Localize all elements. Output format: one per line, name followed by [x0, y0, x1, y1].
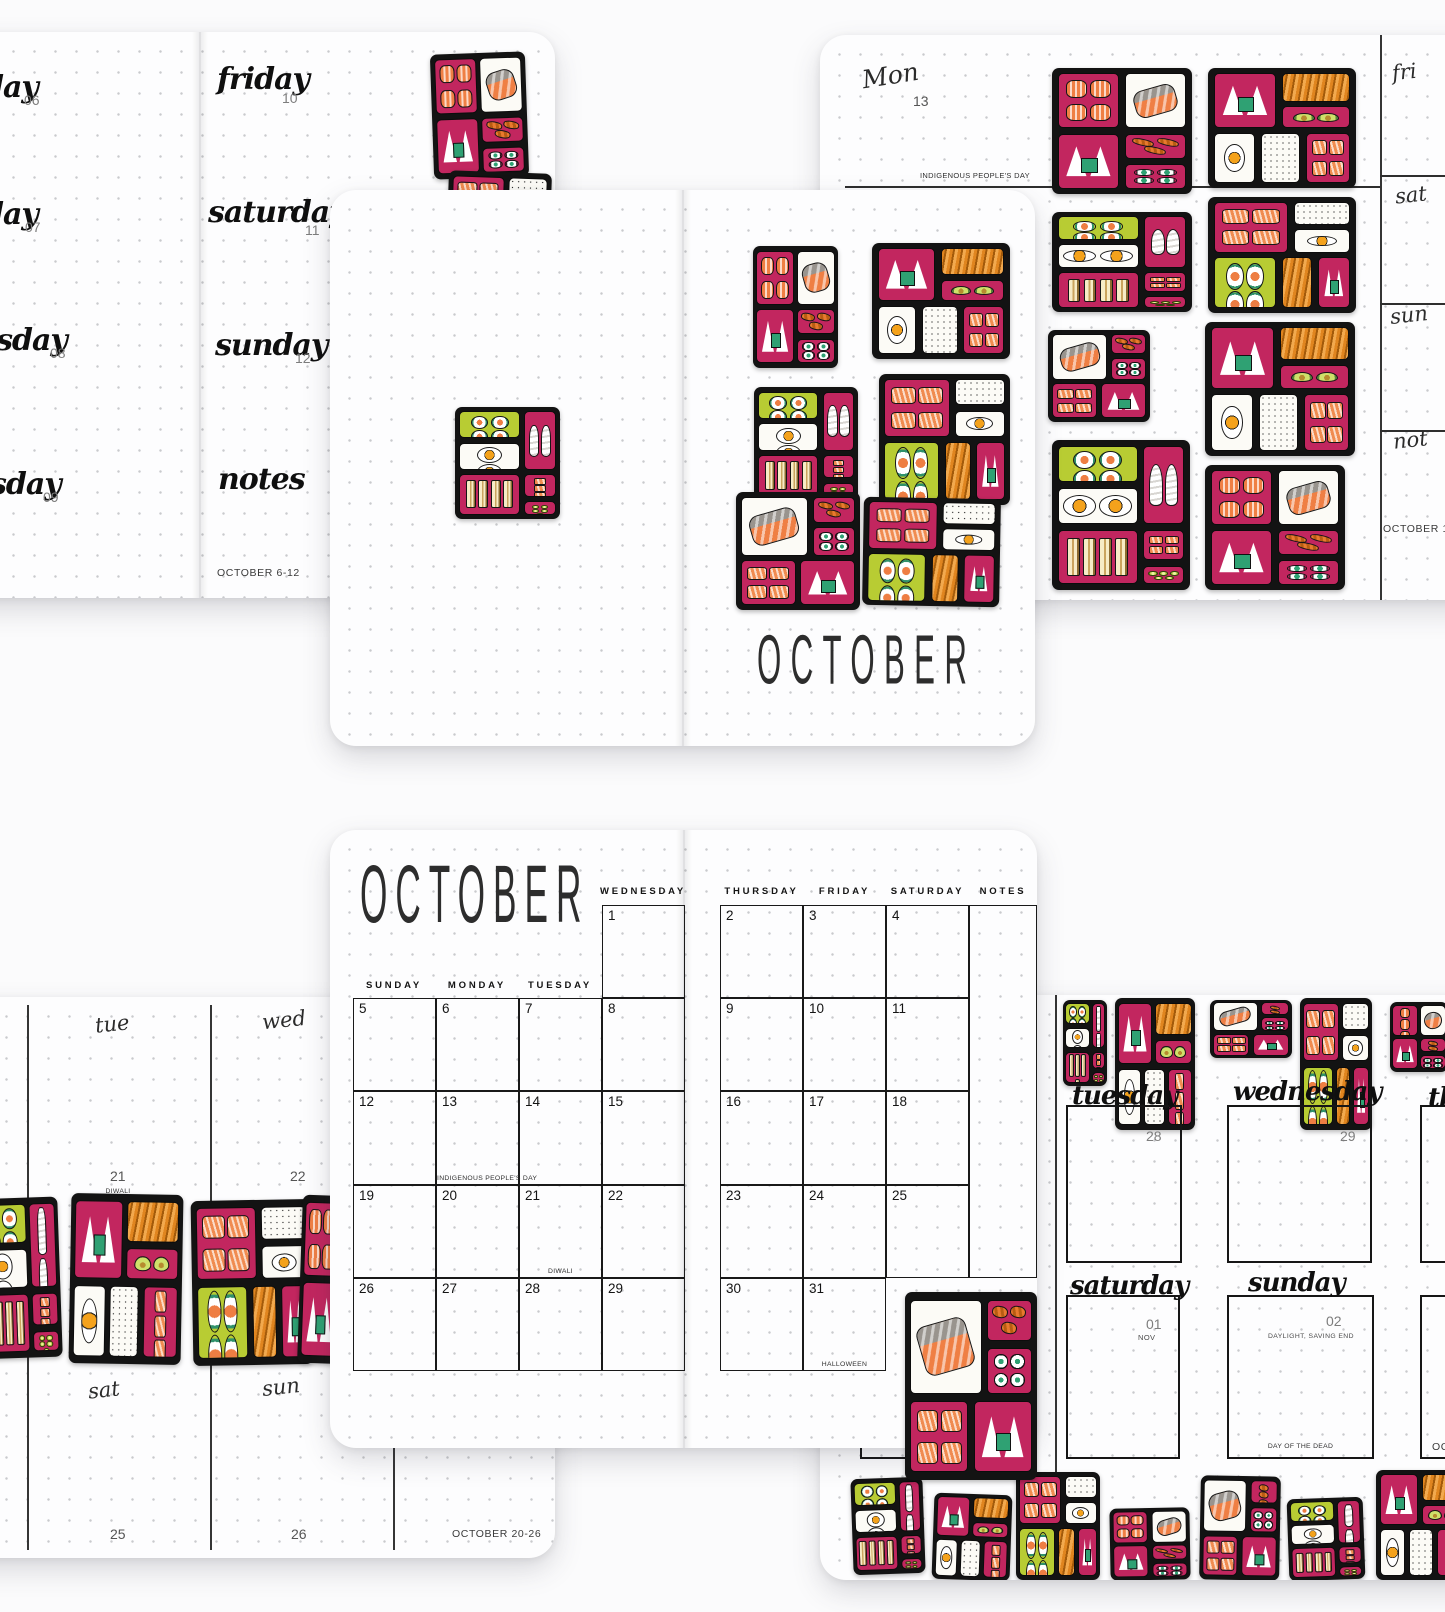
food-piece-icon [503, 120, 520, 130]
food-piece-icon [1026, 1532, 1036, 1559]
food-piece-icon [1307, 236, 1337, 246]
nori-icon [900, 271, 915, 285]
food-piece-icon [1115, 538, 1127, 576]
nori-icon [771, 333, 781, 347]
food-piece-icon [272, 1253, 297, 1272]
food-piece-icon [1400, 1019, 1410, 1030]
bento-box-sticker [753, 246, 838, 368]
food-piece-icon [1400, 1008, 1410, 1019]
bento-compartment-avocado-icon [126, 1248, 178, 1279]
calendar-cell: 8 [602, 998, 685, 1091]
calendar-cell: 29 [602, 1278, 685, 1371]
food-piece-icon [985, 313, 999, 327]
weekday-header: NOTES [943, 886, 1037, 897]
bento-compartment-salmon-icon [1143, 530, 1184, 560]
food-piece-icon [1096, 1054, 1101, 1060]
calendar-cell: 14 [519, 1091, 602, 1184]
bento-compartment-rolls-icon [1065, 1003, 1091, 1024]
calendar-date: 22 [608, 1188, 623, 1203]
bento-compartment-rolls_sm-icon [813, 527, 855, 555]
food-piece-icon [1160, 1046, 1172, 1059]
bento-compartment-salmon-icon [1306, 133, 1350, 183]
bento-compartment-onigiri-icon [1058, 134, 1120, 189]
bento-compartment-rolls-icon [1214, 257, 1276, 308]
food-piece-icon [1433, 1063, 1442, 1068]
calendar-date: 19 [359, 1188, 374, 1203]
calendar-cell: 16 [720, 1091, 803, 1184]
food-piece-icon [917, 1410, 938, 1432]
food-piece-icon [1224, 144, 1245, 173]
calendar-cell: 25 [886, 1185, 969, 1278]
food-piece-icon [1348, 1040, 1363, 1056]
food-piece-icon [776, 257, 790, 275]
bento-compartment-eggs2-icon [1291, 1524, 1336, 1545]
food-piece-icon [941, 1410, 962, 1432]
food-piece-icon [1154, 576, 1163, 580]
bento-compartment-rolls-icon [884, 442, 939, 500]
nori-icon [996, 1433, 1011, 1452]
calendar-date: 16 [726, 1094, 741, 1109]
bento-compartment-salmon-icon [1437, 1529, 1445, 1575]
calendar-cell: 12 [353, 1091, 436, 1184]
bento-compartment-eggs2-icon [1058, 244, 1139, 268]
food-piece-icon [439, 65, 455, 84]
food-piece-icon [491, 430, 509, 438]
bento-compartment-onigiri-icon [1392, 1038, 1418, 1069]
food-piece-icon [40, 1307, 50, 1317]
food-piece-icon [765, 461, 775, 490]
food-piece-icon [861, 1485, 874, 1498]
food-piece-icon [790, 396, 808, 410]
bento-compartment-fried-icon [481, 116, 524, 142]
calendar-cell: 7 [519, 998, 602, 1091]
food-piece-icon [41, 1318, 51, 1325]
food-piece-icon [1265, 1021, 1275, 1026]
bento-compartment-onigiri-icon [1211, 327, 1274, 389]
food-piece-icon [876, 528, 902, 542]
food-piece-icon [1304, 1540, 1323, 1545]
bento-compartment-fried-icon [797, 309, 834, 333]
bento-compartment-eggs2-icon [1065, 1028, 1091, 1049]
food-piece-icon [1306, 1010, 1320, 1029]
food-piece-icon [906, 1565, 912, 1569]
bento-box-sticker [1109, 1507, 1190, 1580]
food-piece-icon [1149, 546, 1163, 554]
nori-icon [1118, 399, 1130, 409]
bento-compartment-salmon-icon [143, 1286, 178, 1358]
food-piece-icon [991, 1544, 1000, 1556]
day-heading-tue: tue [94, 1010, 131, 1037]
bento-box-sticker [879, 374, 1010, 505]
bento-compartment-nigiri-icon [1392, 1005, 1418, 1036]
food-piece-icon [1329, 140, 1344, 155]
food-piece-icon [802, 461, 812, 490]
nori-icon [1267, 1043, 1277, 1050]
food-piece-icon [1253, 1511, 1262, 1520]
calendar-cell: 24 [803, 1185, 886, 1278]
bento-compartment-noodles-icon [1058, 1528, 1075, 1576]
nori-icon [821, 580, 836, 592]
food-piece-icon [1099, 451, 1122, 469]
food-piece-icon [47, 1341, 53, 1347]
day-number: 13 [913, 93, 929, 109]
calendar-date: 17 [809, 1094, 824, 1109]
nori-icon [1235, 355, 1252, 371]
calendar-cell: 5 [353, 998, 436, 1091]
bento-box-sticker [1208, 68, 1356, 188]
bento-compartment-salmon-icon [1019, 1476, 1061, 1524]
food-piece-icon [1329, 161, 1344, 176]
calendar-date: 12 [359, 1094, 374, 1109]
day-heading-sat-partial: sat [1394, 181, 1428, 208]
food-piece-icon [1096, 1033, 1101, 1048]
bento-compartment-noodles-icon [931, 554, 959, 602]
food-piece-icon [1072, 1030, 1083, 1044]
day-number: 28 [1146, 1128, 1162, 1144]
food-piece-icon [839, 405, 850, 438]
day-number: 08 [50, 345, 66, 361]
food-piece-icon [907, 1544, 915, 1550]
food-piece-icon [790, 461, 800, 490]
food-piece-icon [1348, 1576, 1354, 1577]
food-piece-icon [1252, 209, 1279, 224]
bento-compartment-fried-icon [1111, 334, 1146, 354]
food-piece-icon [917, 1442, 938, 1464]
food-piece-icon [1129, 369, 1141, 376]
food-piece-icon [747, 585, 767, 598]
bento-compartment-rolls-icon [853, 1482, 896, 1506]
food-piece-icon [1265, 1026, 1275, 1031]
bento-compartment-ricesp-icon [960, 1540, 982, 1577]
calendar-date: 29 [608, 1281, 623, 1296]
bento-compartment-onigiri-icon [1318, 257, 1351, 308]
day-heading-thursday-partial: th [1428, 1083, 1445, 1113]
calendar-cell: 18 [886, 1091, 969, 1184]
food-piece-icon [1219, 501, 1240, 518]
food-piece-icon [886, 1540, 894, 1565]
bento-compartment-onigiri-icon [974, 1401, 1032, 1472]
food-piece-icon [223, 1291, 238, 1333]
food-piece-icon [994, 1373, 1009, 1388]
food-piece-icon [2, 1208, 17, 1230]
planner-mockup-collage: { "palette":{"magenta":"#c2265f","orange… [0, 0, 1445, 1612]
bento-compartment-onigiri-icon [1214, 73, 1276, 128]
calendar-holiday-note: HALLOWEEN [804, 1361, 885, 1368]
food-piece-icon [906, 1514, 915, 1531]
calendar-cell: 22 [602, 1185, 685, 1278]
calendar-cell: 23 [720, 1185, 803, 1278]
calendar-date: 9 [726, 1001, 734, 1016]
bento-compartment-fried-icon [813, 497, 855, 523]
bento-compartment-whitefish-icon [1143, 446, 1184, 524]
food-piece-icon [1010, 1373, 1025, 1388]
food-piece-icon [1156, 137, 1179, 148]
bento-compartment-cuke-icon [33, 1331, 59, 1351]
food-piece-icon [1170, 1547, 1184, 1554]
bento-compartment-onigiri-icon [1113, 1545, 1149, 1577]
food-piece-icon [1057, 389, 1074, 400]
food-piece-icon [1038, 1532, 1048, 1559]
bento-compartment-onigiri-icon [1118, 1003, 1152, 1064]
bento-compartment-rolls_sm-icon [797, 339, 834, 363]
bento-compartment-noodles-icon [127, 1201, 179, 1243]
bento-compartment-whitefish-icon [1092, 1003, 1105, 1048]
food-piece-icon [1345, 1572, 1351, 1575]
food-piece-icon [918, 387, 942, 404]
bento-compartment-onigiri-icon [800, 560, 855, 605]
bento-compartment-egg-icon [878, 306, 917, 355]
food-piece-icon [951, 286, 971, 295]
food-piece-icon [46, 1335, 52, 1341]
food-piece-icon [1078, 1018, 1086, 1024]
food-piece-icon [0, 1231, 1, 1244]
food-piece-icon [1310, 426, 1326, 442]
food-piece-icon [1287, 565, 1307, 572]
nori-icon [1131, 1030, 1141, 1046]
food-piece-icon [897, 585, 914, 601]
food-piece-icon [1217, 1037, 1231, 1044]
food-piece-icon [308, 1244, 322, 1269]
day-heading-wed: wed [261, 1006, 307, 1034]
bento-compartment-whitefish-icon [898, 1481, 921, 1532]
food-piece-icon [1293, 113, 1314, 122]
food-piece-icon [1024, 1482, 1040, 1497]
food-piece-icon [1073, 451, 1096, 469]
bento-compartment-egg-icon [1380, 1529, 1406, 1575]
food-piece-icon [912, 1565, 918, 1569]
food-piece-icon [154, 1291, 166, 1313]
food-piece-icon [913, 447, 929, 479]
food-piece-icon [39, 1335, 45, 1341]
calendar-date: 4 [892, 908, 900, 923]
bento-compartment-salmon-icon [195, 1207, 256, 1281]
food-piece-icon [1165, 576, 1174, 580]
bento-compartment-fried-icon [1261, 1002, 1289, 1015]
bento-compartment-salmon-icon [1144, 272, 1186, 292]
food-piece-icon [1221, 1558, 1235, 1571]
bento-compartment-eggs2-icon [1058, 488, 1138, 524]
day-heading-sat: sat [87, 1376, 121, 1403]
bento-compartment-fried-icon [1250, 1480, 1278, 1503]
bento-compartment-onigiri-icon [436, 118, 480, 174]
bento-box-sticker [69, 1193, 184, 1365]
monthly-title: OCTOBER [360, 850, 589, 943]
calendar-date: 11 [892, 1001, 906, 1016]
food-piece-icon [895, 447, 911, 479]
calendar-date: 8 [608, 1001, 616, 1016]
food-piece-icon [1149, 536, 1163, 544]
food-piece-icon [471, 430, 489, 438]
food-piece-icon [1165, 464, 1179, 507]
food-piece-icon [489, 160, 504, 169]
bento-box-sticker [1376, 1470, 1445, 1580]
food-piece-icon [1400, 1031, 1410, 1036]
bento-box-sticker [1208, 197, 1356, 313]
food-piece-icon [1073, 470, 1096, 482]
bento-compartment-avocado-icon [941, 280, 1004, 301]
bento-box-sticker [872, 243, 1010, 359]
food-piece-icon [1344, 1504, 1353, 1528]
bento-compartment-avocado-icon [972, 1522, 1008, 1539]
nori-icon [1081, 158, 1097, 173]
food-piece-icon [1100, 250, 1133, 262]
bento-compartment-cuke-icon [524, 501, 556, 514]
bento-compartment-ricesp-icon [109, 1286, 139, 1358]
food-piece-icon [1346, 1561, 1355, 1564]
food-piece-icon [1157, 1571, 1169, 1576]
food-piece-icon [534, 485, 545, 492]
calendar-cell: 2 [720, 905, 803, 998]
food-piece-icon [776, 445, 801, 451]
food-piece-icon [1129, 362, 1141, 369]
bento-compartment-fried-icon [987, 1300, 1032, 1341]
food-piece-icon [1386, 1538, 1399, 1566]
food-piece-icon [1151, 229, 1165, 256]
bento-compartment-rolls_sm-icon [1420, 1055, 1445, 1069]
food-piece-icon [905, 509, 931, 523]
nori-icon [1330, 280, 1339, 294]
food-piece-icon [1312, 161, 1327, 176]
bento-compartment-salmon-icon [1213, 1034, 1249, 1056]
calendar-date: 1 [608, 908, 616, 923]
food-piece-icon [866, 1512, 884, 1527]
food-piece-icon [876, 1498, 889, 1506]
nori-icon [1085, 1549, 1091, 1562]
calendar-date: 31 [809, 1281, 824, 1296]
food-piece-icon [1096, 1067, 1101, 1069]
food-piece-icon [227, 1248, 250, 1271]
calendar-cell: 26 [353, 1278, 436, 1371]
food-piece-icon [1090, 104, 1111, 121]
food-piece-icon [227, 1215, 250, 1238]
food-piece-icon [898, 559, 915, 584]
food-piece-icon [1327, 426, 1343, 442]
food-piece-icon [1322, 1010, 1336, 1029]
food-piece-icon [1243, 477, 1264, 494]
food-piece-icon [495, 129, 512, 139]
food-piece-icon [790, 410, 808, 419]
bento-compartment-sandwich-icon [1065, 1052, 1091, 1083]
calendar-cell: 27 [436, 1278, 519, 1371]
food-piece-icon [1100, 221, 1123, 231]
day-number: 22 [290, 1168, 306, 1184]
day-number: 12 [295, 350, 311, 366]
day-heading-saturday: saturday [208, 195, 346, 230]
food-piece-icon [1310, 402, 1326, 418]
bento-compartment-rolls_sm-icon [1152, 1562, 1187, 1577]
bento-compartment-fried-icon [1278, 530, 1340, 555]
calendar-date: 3 [809, 908, 817, 923]
day-heading-tuesday: tuesday [1072, 1081, 1177, 1111]
food-piece-icon [817, 342, 830, 350]
calendar-date: 23 [726, 1188, 741, 1203]
bento-compartment-salmon-icon [910, 1401, 968, 1472]
bento-compartment-avocado-icon [1422, 1505, 1445, 1525]
food-piece-icon [1067, 538, 1079, 576]
food-piece-icon [905, 1484, 914, 1512]
bento-compartment-onigiri-icon [756, 309, 793, 363]
bento-compartment-fried-icon [1125, 134, 1187, 159]
food-piece-icon [1081, 1054, 1086, 1078]
bento-compartment-salmon-icon [1214, 202, 1288, 253]
calendar-cell: 17 [803, 1091, 886, 1184]
bento-compartment-whitefish-icon [29, 1203, 57, 1287]
food-piece-icon [1351, 1572, 1357, 1575]
food-piece-icon [776, 281, 790, 299]
food-piece-icon [1066, 80, 1087, 97]
food-piece-icon [456, 64, 472, 83]
food-piece-icon [154, 1315, 166, 1337]
day-heading-mon: Mon [860, 57, 921, 95]
food-piece-icon [1075, 389, 1092, 400]
bento-compartment-ricesp-icon [260, 1206, 306, 1240]
bento-compartment-salmon-icon [963, 306, 1004, 355]
calendar-cell: 3 [803, 905, 886, 998]
bento-compartment-sandwich-icon [459, 474, 520, 514]
food-piece-icon [1078, 1006, 1086, 1018]
bento-compartment-ricesp-icon [1065, 1476, 1097, 1498]
food-piece-icon [799, 260, 832, 295]
bento-compartment-whitefish-icon [1144, 216, 1186, 268]
food-piece-icon [1099, 495, 1132, 517]
food-piece-icon [207, 1291, 222, 1333]
calendar-date: 28 [525, 1281, 540, 1296]
food-piece-icon [1317, 113, 1338, 122]
food-piece-icon [1117, 1528, 1130, 1539]
nori-icon [1402, 1052, 1410, 1061]
food-piece-icon [1122, 343, 1136, 351]
food-piece-icon [940, 1546, 952, 1568]
food-piece-icon [879, 558, 896, 583]
nori-icon [1238, 97, 1254, 112]
food-piece-icon [909, 1569, 915, 1570]
day-number: 02 [1326, 1313, 1342, 1329]
food-piece-icon [1433, 1058, 1442, 1063]
food-piece-icon [491, 480, 501, 508]
calendar-cell: 13INDIGENOUS PEOPLE'S DAY [436, 1091, 519, 1184]
bento-compartment-onigiri-icon [1101, 383, 1146, 418]
day-box-saturday [1066, 1295, 1180, 1459]
food-piece-icon [1068, 279, 1081, 302]
food-piece-icon [808, 321, 823, 331]
food-piece-icon [505, 160, 520, 169]
food-piece-icon [1155, 304, 1164, 307]
food-piece-icon [1253, 1520, 1262, 1529]
food-piece-icon [1232, 1037, 1246, 1044]
week-range-label: OCTOBER 6-12 [217, 567, 300, 579]
notes-heading: notes [218, 462, 305, 497]
calendar-cell: 9 [720, 998, 803, 1091]
bento-compartment-cuke-icon [901, 1557, 923, 1569]
calendar-date: 15 [608, 1094, 623, 1109]
food-piece-icon [1324, 1551, 1332, 1572]
page-fold [192, 32, 208, 598]
calendar-cell: 28 [519, 1278, 602, 1371]
food-piece-icon [859, 1541, 867, 1566]
food-piece-icon [1246, 263, 1263, 290]
food-piece-icon [1096, 1006, 1101, 1032]
day-heading-sun: sun [261, 1373, 301, 1401]
food-piece-icon [1134, 177, 1154, 184]
bento-compartment-sashimi-icon [1151, 1510, 1187, 1542]
calendar-date: 30 [726, 1281, 741, 1296]
bento-compartment-salmon-icon [1052, 383, 1097, 418]
food-piece-icon [1252, 230, 1279, 245]
calendar-date: 24 [809, 1188, 824, 1203]
food-piece-icon [1298, 1505, 1312, 1516]
food-piece-icon [1149, 464, 1163, 507]
bento-box-sticker [1287, 1497, 1366, 1580]
